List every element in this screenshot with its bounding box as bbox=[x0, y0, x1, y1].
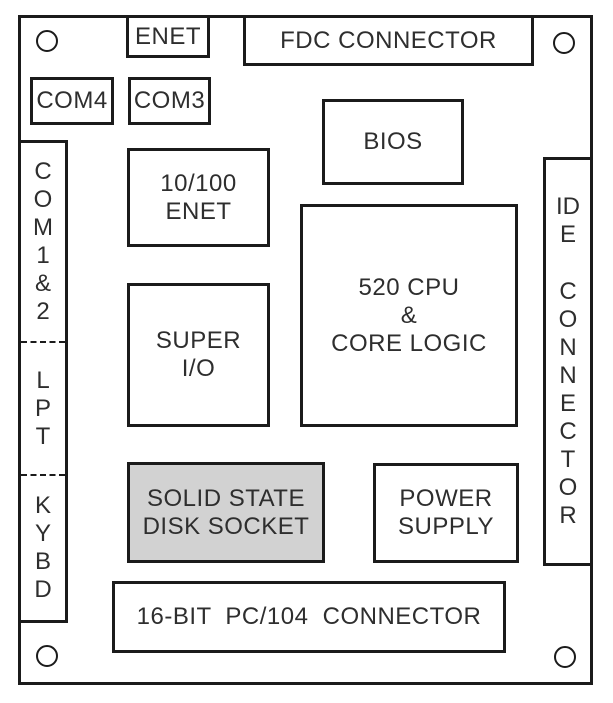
block-ide-connector: IDE CONNECTOR bbox=[543, 157, 593, 566]
mounting-hole-top-right bbox=[553, 32, 575, 54]
left-io-segment-lpt: LPT bbox=[21, 341, 65, 474]
block-com3: COM3 bbox=[128, 77, 211, 125]
left-io-segment-kybd-label: KYBD bbox=[31, 492, 55, 604]
left-io-segment-com1-2: COM1&2 bbox=[21, 143, 65, 341]
block-ide-connector-label-connector: CONNECTOR bbox=[556, 278, 580, 530]
mounting-hole-top-left bbox=[36, 30, 58, 52]
block-pc104-connector-label: 16-BIT PC/104 CONNECTOR bbox=[137, 603, 482, 631]
left-io-segment-kybd: KYBD bbox=[21, 474, 65, 620]
block-cpu-core-logic: 520 CPU & CORE LOGIC bbox=[300, 204, 518, 427]
block-fdc-connector: FDC CONNECTOR bbox=[243, 15, 534, 66]
board-diagram: ENET FDC CONNECTOR COM4 COM3 BIOS 10/100… bbox=[0, 0, 613, 703]
block-enet: ENET bbox=[126, 15, 210, 58]
block-com4-label: COM4 bbox=[36, 87, 107, 115]
block-enet-label: ENET bbox=[135, 23, 201, 51]
block-pc104-connector: 16-BIT PC/104 CONNECTOR bbox=[112, 581, 506, 653]
mounting-hole-bottom-left bbox=[36, 645, 58, 667]
block-super-io-label: SUPER I/O bbox=[156, 327, 241, 383]
block-com4: COM4 bbox=[30, 77, 114, 125]
left-io-segment-com1-2-label: COM1&2 bbox=[31, 158, 55, 326]
block-10-100-enet: 10/100 ENET bbox=[127, 148, 270, 247]
mounting-hole-bottom-right bbox=[554, 646, 576, 668]
block-10-100-enet-label: 10/100 ENET bbox=[160, 170, 236, 226]
block-solid-state-disk-socket: SOLID STATE DISK SOCKET bbox=[127, 462, 325, 563]
block-bios: BIOS bbox=[322, 99, 464, 185]
block-power-supply-label: POWER SUPPLY bbox=[398, 485, 494, 541]
block-super-io: SUPER I/O bbox=[127, 283, 270, 427]
block-left-io-connector: COM1&2 LPT KYBD bbox=[18, 140, 68, 623]
block-ide-connector-label-ide: IDE bbox=[556, 193, 580, 249]
left-io-segment-lpt-label: LPT bbox=[31, 367, 55, 451]
block-com3-label: COM3 bbox=[134, 87, 205, 115]
block-solid-state-disk-socket-label: SOLID STATE DISK SOCKET bbox=[143, 485, 310, 541]
block-bios-label: BIOS bbox=[363, 128, 422, 156]
block-power-supply: POWER SUPPLY bbox=[373, 463, 519, 563]
block-cpu-core-logic-label: 520 CPU & CORE LOGIC bbox=[331, 274, 487, 358]
block-fdc-connector-label: FDC CONNECTOR bbox=[280, 27, 497, 55]
